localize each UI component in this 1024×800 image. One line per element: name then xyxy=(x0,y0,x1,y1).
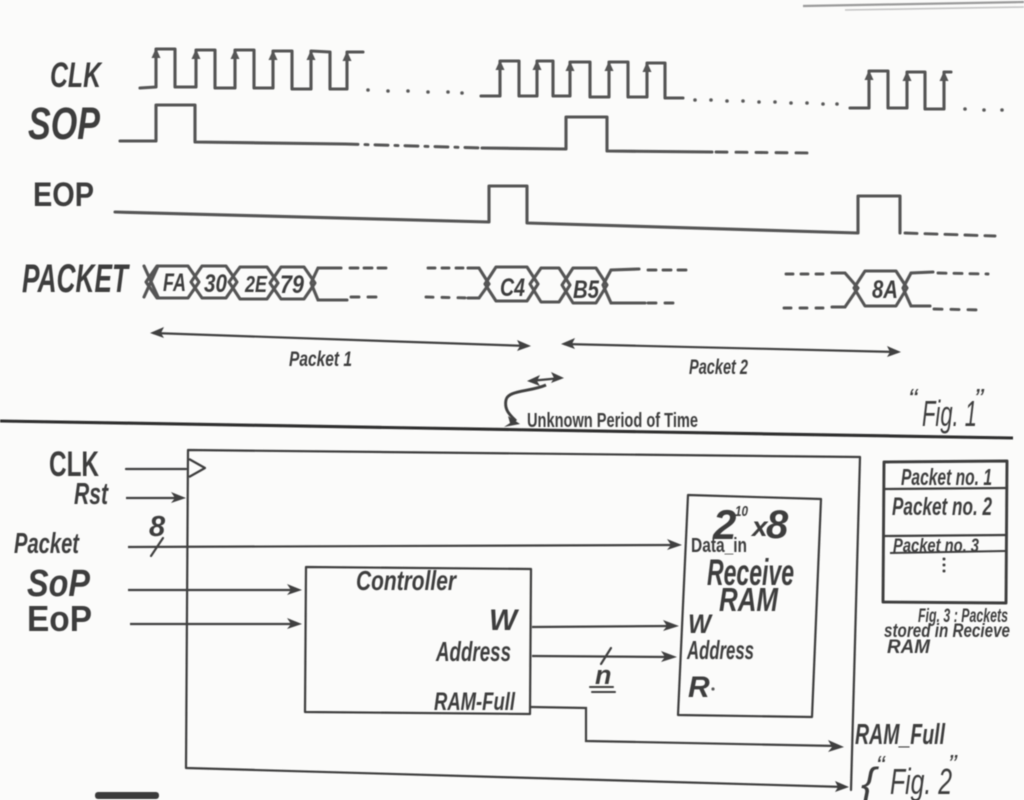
svg-text:Unknown Period of Time: Unknown Period of Time xyxy=(527,410,698,432)
svg-text:FA: FA xyxy=(163,269,186,297)
svg-text:Fig. 2: Fig. 2 xyxy=(890,761,952,800)
svg-text:Rst: Rst xyxy=(74,476,109,511)
svg-text:PACKET: PACKET xyxy=(22,257,130,301)
svg-text:Packet no. 3: Packet no. 3 xyxy=(893,536,979,557)
svg-text:Packet 1: Packet 1 xyxy=(289,348,352,371)
svg-text:CLK: CLK xyxy=(50,56,103,95)
svg-text:Address: Address xyxy=(435,636,511,667)
svg-text:W: W xyxy=(489,604,520,637)
svg-text:B5: B5 xyxy=(573,276,600,304)
svg-text:Controller: Controller xyxy=(356,565,458,596)
svg-text:RAM: RAM xyxy=(887,637,931,658)
svg-text:RAM-Full: RAM-Full xyxy=(434,688,516,716)
svg-text:30: 30 xyxy=(204,270,227,298)
svg-text:n: n xyxy=(595,660,612,690)
svg-text:79: 79 xyxy=(280,271,304,299)
svg-text:RAM_Full: RAM_Full xyxy=(855,719,946,751)
svg-text:Address: Address xyxy=(686,635,754,665)
svg-text:RAM: RAM xyxy=(719,581,779,618)
svg-text:Packet: Packet xyxy=(14,528,80,560)
svg-text:EoP: EoP xyxy=(27,598,92,639)
svg-text:SOP: SOP xyxy=(28,98,101,149)
svg-text:Packet no. 2: Packet no. 2 xyxy=(892,493,992,521)
svg-text:”: ” xyxy=(948,749,958,779)
svg-text:EOP: EOP xyxy=(33,176,94,214)
svg-text:10: 10 xyxy=(735,503,749,520)
svg-text:2E: 2E xyxy=(244,271,267,297)
svg-text:C4: C4 xyxy=(500,274,525,302)
svg-text:Packet 2: Packet 2 xyxy=(689,356,748,379)
svg-text:8A: 8A xyxy=(872,276,898,304)
svg-text:“: “ xyxy=(876,750,886,780)
svg-text:Packet no. 1: Packet no. 1 xyxy=(901,464,992,490)
svg-text:Fig. 1: Fig. 1 xyxy=(922,393,977,434)
svg-text:8: 8 xyxy=(766,503,789,547)
svg-text:R: R xyxy=(688,671,710,704)
